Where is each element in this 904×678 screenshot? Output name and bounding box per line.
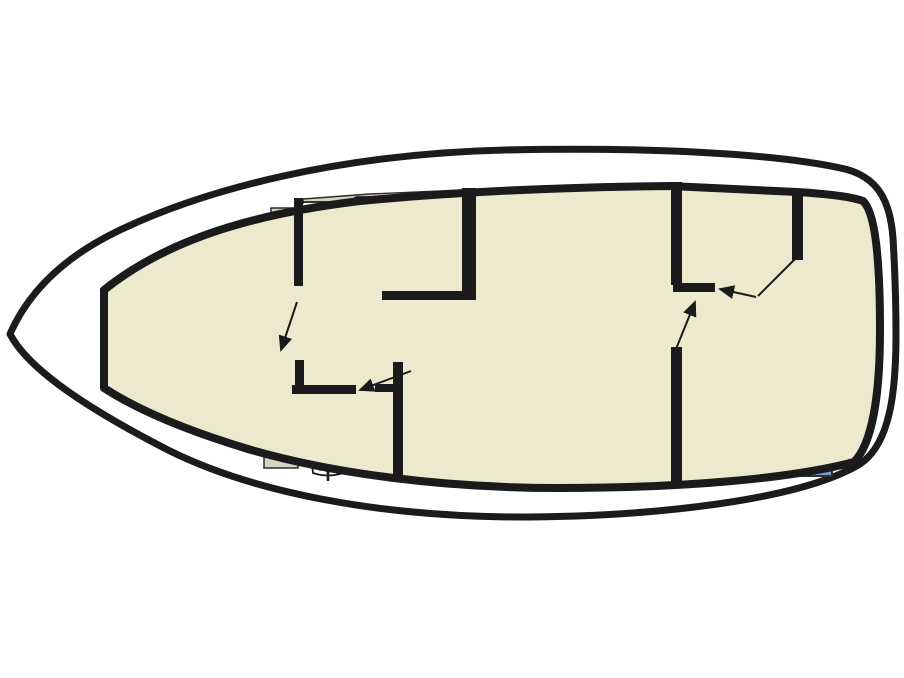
wall-aft-cabin-left — [671, 347, 682, 486]
boat-floorplan — [0, 0, 904, 678]
wall-aft-bath-right — [792, 189, 803, 260]
wall-forward-bath-top — [292, 385, 356, 394]
wall-aft-bath-left — [671, 182, 682, 285]
floorplan-canvas — [0, 0, 904, 678]
wall-companionway-left — [393, 362, 403, 480]
wall-saloon-top — [382, 291, 470, 300]
wall-aft-bath-stub — [673, 283, 715, 292]
cabin-wall-outline — [104, 186, 880, 488]
wall-galley-left — [294, 198, 303, 286]
wall-galley-right — [462, 188, 476, 300]
wall-forward-bath-stub — [375, 384, 395, 392]
